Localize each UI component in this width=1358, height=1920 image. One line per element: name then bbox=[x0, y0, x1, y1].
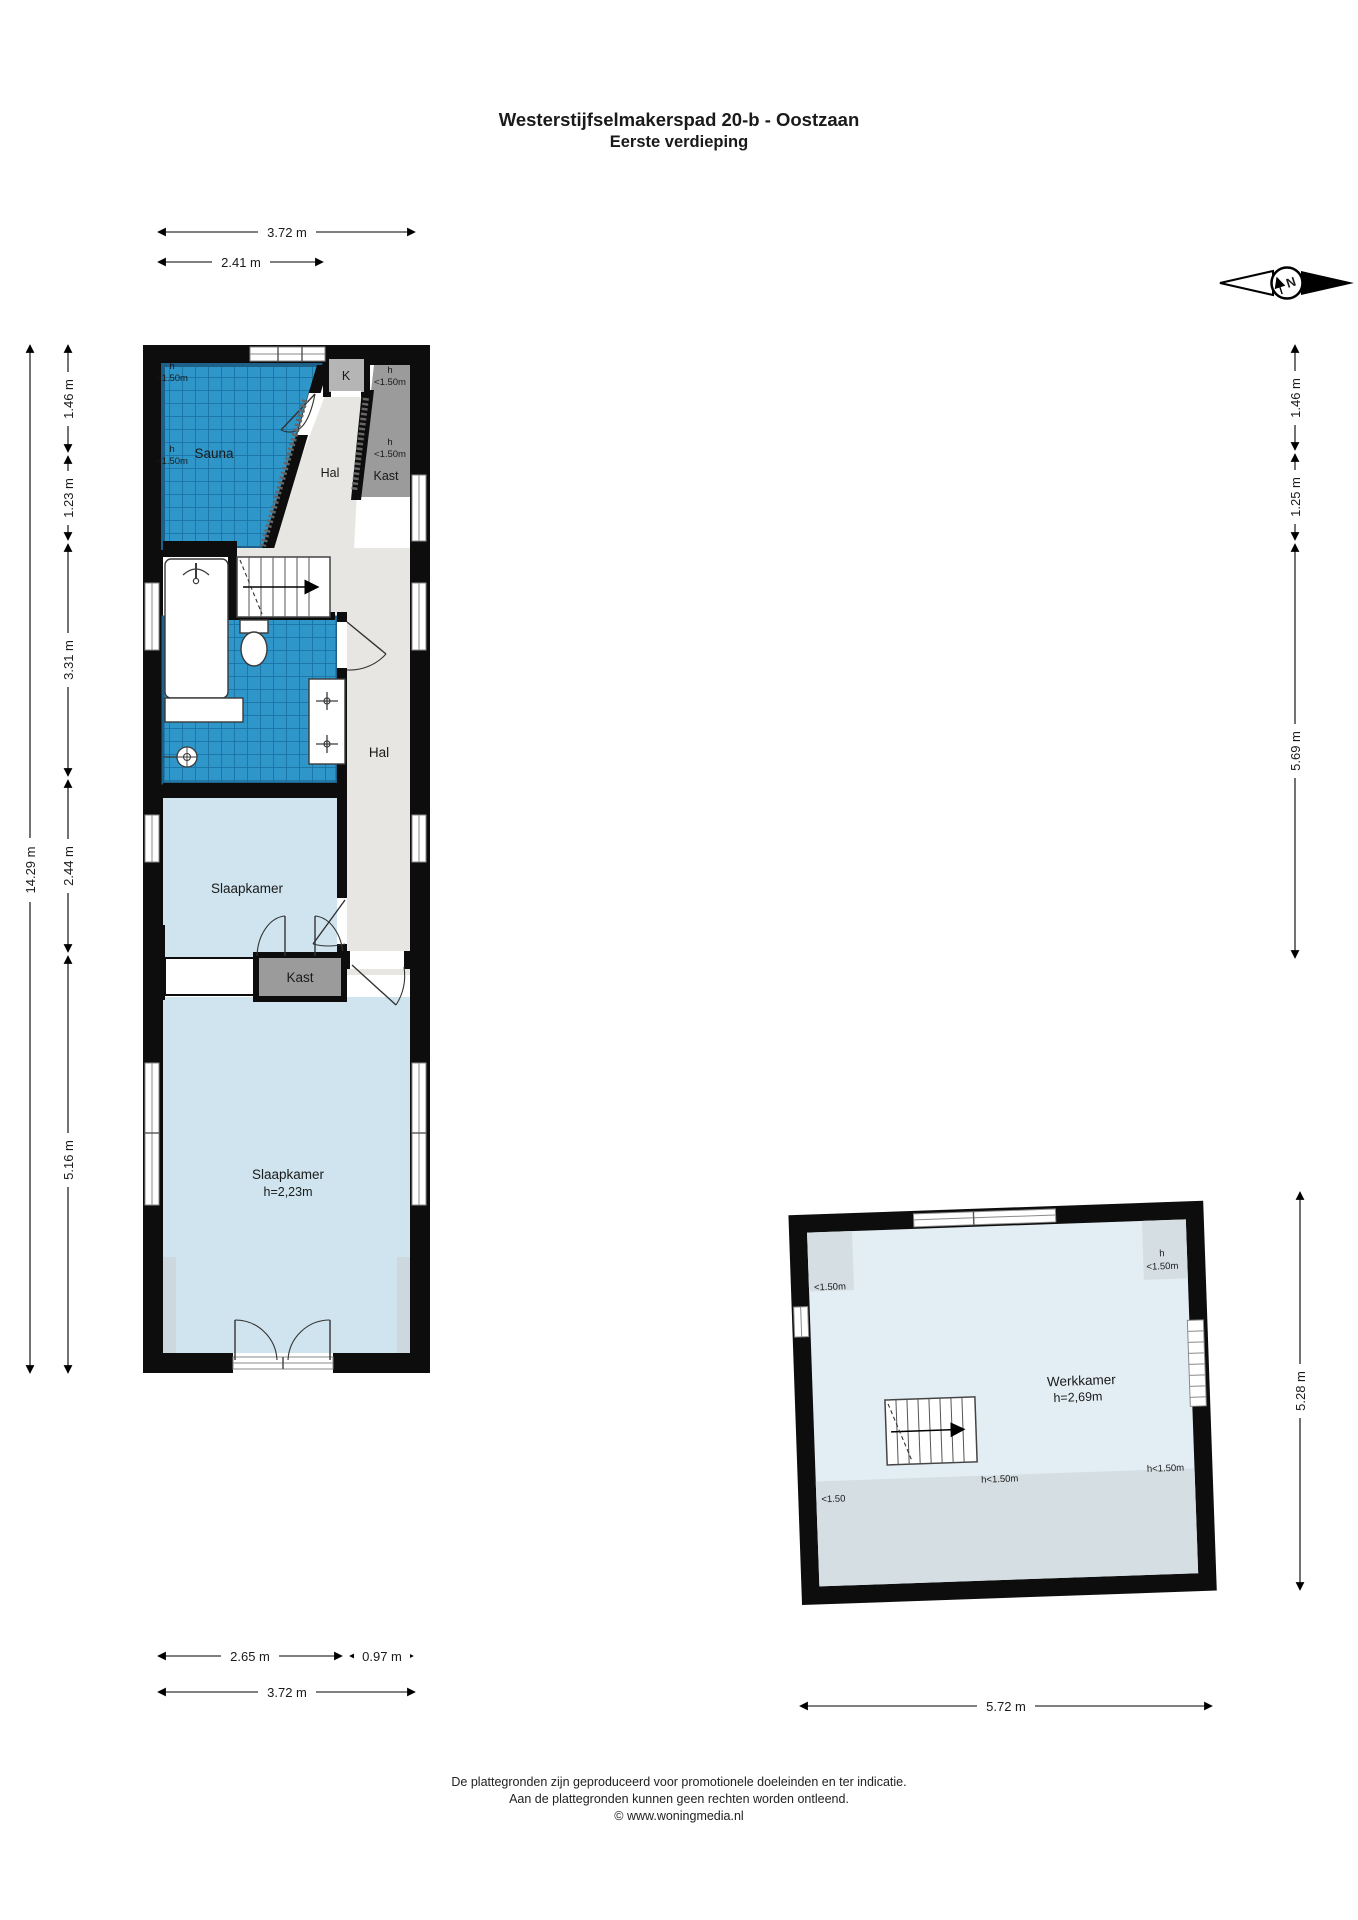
dim-left-3: 3.31 m bbox=[61, 640, 76, 680]
dim-left-2: 1.23 m bbox=[61, 478, 76, 518]
footer-disclaimer-1: De plattegronden zijn geproduceerd voor … bbox=[451, 1775, 906, 1789]
werkkamer-h-topright-label: h bbox=[1159, 1248, 1165, 1259]
dim-left-4: 2.44 m bbox=[61, 846, 76, 886]
dim-bottom-2: 0.97 m bbox=[362, 1649, 402, 1664]
page-title: Westerstijfselmakerspad 20-b - Oostzaan bbox=[499, 109, 860, 130]
hal-label: Hal bbox=[369, 745, 389, 760]
page-subtitle: Eerste verdieping bbox=[610, 133, 748, 151]
slaapkamer2-label: Slaapkamer bbox=[252, 1167, 325, 1182]
werkkamer-lt150-topright-label: <1.50m bbox=[1146, 1261, 1178, 1273]
hal-upper-label: Hal bbox=[321, 466, 340, 480]
dim-bottom-total: 3.72 m bbox=[267, 1685, 307, 1700]
bath-shelf bbox=[165, 698, 243, 722]
kast-upper-label: Kast bbox=[373, 469, 399, 483]
kast-upper-h-label-2: h bbox=[387, 437, 392, 448]
sauna-lt150-label-1: <1.50m bbox=[156, 373, 188, 384]
sauna-h-label-1: h bbox=[169, 361, 174, 372]
footer-copyright: © www.woningmedia.nl bbox=[614, 1809, 743, 1823]
dim-annex-bottom: 5.72 m bbox=[986, 1699, 1026, 1714]
kast-upper-h-label-1: h bbox=[387, 365, 392, 376]
footer-disclaimer-2: Aan de plattegronden kunnen geen rechten… bbox=[509, 1792, 849, 1806]
room-hal bbox=[347, 620, 410, 975]
bathtub bbox=[165, 559, 228, 698]
dim-top-part: 2.41 m bbox=[221, 255, 261, 270]
werkkamer-label: Werkkamer bbox=[1047, 1372, 1117, 1389]
built-in-closet bbox=[165, 958, 255, 995]
dim-top-total: 3.72 m bbox=[267, 225, 307, 240]
main-building: h <1.50m h <1.50m Sauna K h <1.50m h <1.… bbox=[143, 345, 430, 1373]
werkkamer-lt150-bottomleft-label: <1.50 bbox=[821, 1493, 845, 1505]
floorplan-page: Westerstijfselmakerspad 20-b - Oostzaan … bbox=[0, 0, 1358, 1920]
slaapkamer2-height-label: h=2,23m bbox=[264, 1185, 313, 1199]
slaapkamer1-label: Slaapkamer bbox=[211, 881, 284, 896]
werkkamer-lt150-topleft-label: <1.50m bbox=[814, 1281, 846, 1293]
dim-right-3: 5.69 m bbox=[1288, 731, 1303, 771]
kast-lower-label: Kast bbox=[286, 970, 313, 985]
werkkamer-hlt150-bottomright-label: h<1.50m bbox=[1147, 1463, 1185, 1475]
dim-bottom-1: 2.65 m bbox=[230, 1649, 270, 1664]
sauna-lt150-label-2: <1.50m bbox=[156, 456, 188, 467]
dim-left-1: 1.46 m bbox=[61, 379, 76, 419]
dim-right-1: 1.46 m bbox=[1288, 378, 1303, 418]
sauna-h-label-2: h bbox=[169, 444, 174, 455]
staircase bbox=[237, 557, 330, 617]
annex-staircase bbox=[885, 1397, 977, 1465]
kast-upper-lt150-label-2: <1.50m bbox=[374, 449, 406, 460]
compass-icon: N bbox=[1220, 268, 1354, 299]
floorplan-drawing: Westerstijfselmakerspad 20-b - Oostzaan … bbox=[0, 0, 1358, 1920]
double-washbasin bbox=[309, 679, 345, 764]
dim-right-2: 1.25 m bbox=[1288, 477, 1303, 517]
toilet bbox=[240, 620, 268, 666]
kast-upper-lt150-label-1: <1.50m bbox=[374, 377, 406, 388]
werkkamer-height-label: h=2,69m bbox=[1053, 1389, 1102, 1405]
sauna-label: Sauna bbox=[194, 446, 234, 461]
dim-annex-right: 5.28 m bbox=[1293, 1371, 1308, 1411]
annex-building: <1.50m h <1.50m Werkkamer h=2,69m <1.50 … bbox=[788, 1201, 1216, 1605]
dim-left-5: 5.16 m bbox=[61, 1140, 76, 1180]
dim-left-total: 14.29 m bbox=[23, 847, 38, 894]
k-closet-label: K bbox=[342, 369, 351, 383]
werkkamer-hlt150-bottommid-label: h<1.50m bbox=[981, 1473, 1019, 1485]
